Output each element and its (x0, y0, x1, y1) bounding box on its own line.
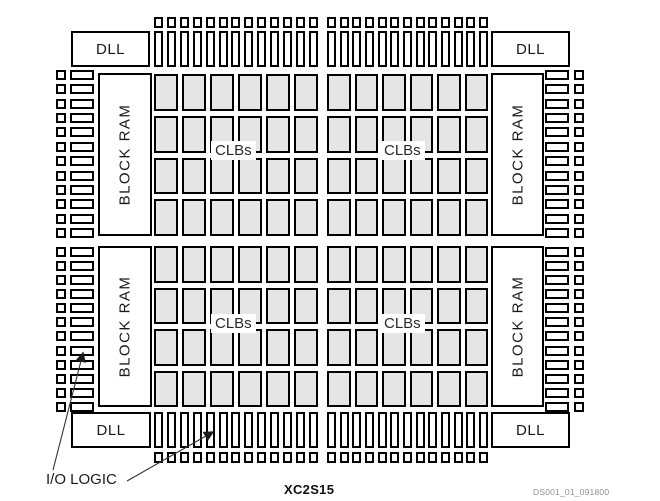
io-pad (70, 185, 94, 195)
io-pad (352, 17, 361, 28)
clb-cell (355, 371, 379, 408)
io-pad (296, 412, 305, 448)
io-pad (340, 452, 349, 463)
io-pad (70, 388, 94, 398)
clb-cell (382, 158, 406, 195)
io-pads-right-outer-bottom (574, 247, 584, 412)
io-pads-bottom-inner-right (327, 412, 488, 448)
io-pad (270, 31, 279, 67)
io-pad (390, 452, 399, 463)
clb-cell (266, 371, 290, 408)
io-pad (180, 412, 189, 448)
io-pad (545, 303, 569, 313)
io-pad (574, 199, 584, 209)
io-pad (70, 374, 94, 384)
io-pad (545, 99, 569, 109)
io-pad (466, 31, 475, 67)
io-pad (327, 412, 336, 448)
clb-cell (238, 246, 262, 283)
io-pad (574, 156, 584, 166)
io-pad (193, 412, 202, 448)
io-pad (441, 412, 450, 448)
io-pad (479, 17, 488, 28)
clbs-label-top-right: CLBs (380, 141, 425, 160)
io-pad (56, 214, 66, 224)
io-pad (231, 412, 240, 448)
io-pad (70, 360, 94, 370)
clb-cell (182, 329, 206, 366)
io-pad (441, 17, 450, 28)
io-pad (309, 452, 318, 463)
clb-cell (437, 158, 461, 195)
clb-cell (410, 329, 434, 366)
clb-cell (437, 199, 461, 236)
io-pad (545, 346, 569, 356)
io-pad (167, 17, 176, 28)
io-pad (206, 17, 215, 28)
clb-cell (182, 116, 206, 153)
io-pad (574, 317, 584, 327)
io-pad (56, 113, 66, 123)
io-pad (70, 127, 94, 137)
io-pad (56, 317, 66, 327)
io-pad (56, 228, 66, 238)
clb-cell (154, 329, 178, 366)
io-pad (574, 261, 584, 271)
io-pad (70, 113, 94, 123)
clb-cell (410, 246, 434, 283)
io-pad (545, 331, 569, 341)
block-ram-label: BLOCK RAM (509, 104, 526, 206)
clb-cell (327, 199, 351, 236)
io-pad (231, 31, 240, 67)
io-pad (403, 31, 412, 67)
io-pad (454, 17, 463, 28)
io-pad (403, 452, 412, 463)
io-pad (545, 360, 569, 370)
io-pad (56, 171, 66, 181)
clb-cell (266, 199, 290, 236)
io-pads-left-inner-bottom (70, 247, 94, 412)
io-pad (70, 275, 94, 285)
clb-cell (355, 158, 379, 195)
io-pad (574, 289, 584, 299)
fpga-architecture-diagram: DLL DLL DLL DLL BLOCK RAM BLOCK RAM BLOC… (0, 0, 660, 501)
clb-cell (294, 116, 318, 153)
clb-cell (437, 329, 461, 366)
clb-cell (327, 116, 351, 153)
clb-cell (437, 74, 461, 111)
io-pad (296, 17, 305, 28)
clb-cell (266, 288, 290, 325)
clb-cell (182, 158, 206, 195)
io-pad (167, 452, 176, 463)
io-pad (56, 388, 66, 398)
io-pad (296, 452, 305, 463)
io-pad (378, 452, 387, 463)
io-pads-left-inner-top (70, 70, 94, 238)
io-pad (70, 70, 94, 80)
io-pad (257, 17, 266, 28)
io-pad (574, 171, 584, 181)
io-pad (244, 412, 253, 448)
clb-cell (382, 371, 406, 408)
io-pad (378, 412, 387, 448)
io-pad (403, 17, 412, 28)
io-pad (454, 31, 463, 67)
io-pad (466, 412, 475, 448)
io-pad (70, 261, 94, 271)
io-pads-right-outer-top (574, 70, 584, 238)
io-pad (70, 317, 94, 327)
clb-cell (266, 74, 290, 111)
io-pad (545, 228, 569, 238)
io-pad (545, 70, 569, 80)
clbs-label-bottom-right: CLBs (380, 314, 425, 333)
dll-label: DLL (96, 41, 125, 58)
io-pad (154, 412, 163, 448)
io-pad (56, 261, 66, 271)
io-pad (70, 346, 94, 356)
io-pad (574, 360, 584, 370)
io-pad (70, 214, 94, 224)
io-pad (270, 17, 279, 28)
clb-cell (355, 288, 379, 325)
io-pad (574, 70, 584, 80)
io-pad (352, 452, 361, 463)
io-pad (70, 331, 94, 341)
clb-cell (210, 246, 234, 283)
clb-cell (182, 74, 206, 111)
clb-cell (210, 371, 234, 408)
block-ram-bottom-left: BLOCK RAM (98, 246, 152, 407)
io-pad (56, 331, 66, 341)
clb-cell (210, 199, 234, 236)
io-pads-bottom-outer-right (327, 452, 488, 463)
io-pad (574, 142, 584, 152)
io-pad (416, 31, 425, 67)
clb-cell (154, 246, 178, 283)
io-pad (70, 402, 94, 412)
clb-cell (182, 288, 206, 325)
io-pad (56, 360, 66, 370)
io-pads-left-outer-bottom (56, 247, 66, 412)
io-pad (390, 412, 399, 448)
clb-cell (327, 288, 351, 325)
clb-cell (154, 199, 178, 236)
io-pad (545, 171, 569, 181)
io-pad (193, 31, 202, 67)
io-pad (441, 452, 450, 463)
io-pad (479, 412, 488, 448)
clb-cell (238, 158, 262, 195)
io-pad (545, 247, 569, 257)
clb-cell (327, 158, 351, 195)
io-pad (545, 127, 569, 137)
io-pad (466, 17, 475, 28)
io-pad (352, 31, 361, 67)
clb-cell (465, 371, 489, 408)
clb-cell (266, 158, 290, 195)
io-pad (193, 452, 202, 463)
clb-cell (266, 329, 290, 366)
clb-cell (266, 246, 290, 283)
io-pad (180, 452, 189, 463)
io-pad (257, 412, 266, 448)
clb-cell (154, 158, 178, 195)
dll-block-top-left: DLL (71, 31, 150, 67)
io-pad (378, 17, 387, 28)
io-pad (378, 31, 387, 67)
io-pad (270, 452, 279, 463)
io-pad (270, 412, 279, 448)
io-pad (545, 84, 569, 94)
dll-label: DLL (96, 422, 125, 439)
io-pad (574, 185, 584, 195)
io-pads-top-inner-right (327, 31, 488, 67)
clb-cell (210, 74, 234, 111)
io-pad (441, 31, 450, 67)
io-pad (56, 70, 66, 80)
io-pad (56, 247, 66, 257)
clb-cell (294, 371, 318, 408)
io-pad (416, 17, 425, 28)
io-pad (365, 17, 374, 28)
dll-block-top-right: DLL (491, 31, 570, 67)
io-pad (56, 275, 66, 285)
clb-cell (355, 246, 379, 283)
clb-cell (154, 288, 178, 325)
io-pad (56, 303, 66, 313)
dll-block-bottom-right: DLL (491, 412, 570, 448)
clb-cell (182, 371, 206, 408)
clb-cell (437, 371, 461, 408)
block-ram-label: BLOCK RAM (117, 276, 134, 378)
io-pad (70, 142, 94, 152)
clb-cell (465, 158, 489, 195)
io-pad (257, 452, 266, 463)
io-pad (574, 388, 584, 398)
io-pad (428, 412, 437, 448)
clb-cell (294, 329, 318, 366)
io-pad (244, 31, 253, 67)
clb-cell (410, 199, 434, 236)
io-pad (56, 374, 66, 384)
io-pad (574, 346, 584, 356)
io-pad (56, 199, 66, 209)
io-pad (154, 17, 163, 28)
clb-cell (355, 329, 379, 366)
clb-cell (294, 158, 318, 195)
part-number-label: XC2S15 (284, 482, 334, 497)
io-pads-top-inner-left (154, 31, 318, 67)
io-pad (193, 17, 202, 28)
io-pad (70, 289, 94, 299)
clb-cell (410, 371, 434, 408)
io-pad (454, 412, 463, 448)
io-pad (56, 402, 66, 412)
io-pad (56, 185, 66, 195)
io-pad (244, 452, 253, 463)
io-pad (70, 303, 94, 313)
io-pads-left-outer-top (56, 70, 66, 238)
block-ram-top-right: BLOCK RAM (491, 73, 544, 236)
io-pad (428, 17, 437, 28)
io-pads-top-outer-right (327, 17, 488, 28)
io-pad (70, 247, 94, 257)
io-pad (574, 247, 584, 257)
io-pad (180, 31, 189, 67)
io-pad (244, 17, 253, 28)
io-pad (574, 113, 584, 123)
io-pad (545, 261, 569, 271)
io-pad (219, 412, 228, 448)
dll-label: DLL (516, 422, 545, 439)
clb-cell (327, 246, 351, 283)
io-pad (416, 412, 425, 448)
clb-cell (294, 74, 318, 111)
io-pad (70, 156, 94, 166)
clb-cell (355, 116, 379, 153)
clb-cell (465, 74, 489, 111)
io-pad (428, 31, 437, 67)
io-pad (365, 452, 374, 463)
io-pad (56, 156, 66, 166)
io-pad (309, 31, 318, 67)
clb-cell (238, 199, 262, 236)
io-pad (545, 199, 569, 209)
io-pad (545, 402, 569, 412)
io-pad (545, 142, 569, 152)
io-pad (327, 17, 336, 28)
clbs-label-bottom-left: CLBs (211, 314, 256, 333)
clb-cell (410, 158, 434, 195)
io-pad (283, 452, 292, 463)
io-pad (296, 31, 305, 67)
io-pad (466, 452, 475, 463)
io-pad (70, 199, 94, 209)
clb-cell (238, 371, 262, 408)
io-pad (154, 452, 163, 463)
io-pad (574, 331, 584, 341)
io-pads-top-outer-left (154, 17, 318, 28)
clb-cell (355, 74, 379, 111)
io-pad (574, 275, 584, 285)
clb-cell (410, 74, 434, 111)
clb-cell (327, 371, 351, 408)
io-pad (70, 99, 94, 109)
io-pad (365, 31, 374, 67)
clb-cell (154, 371, 178, 408)
io-pads-bottom-inner-left (154, 412, 318, 448)
io-pad (309, 17, 318, 28)
io-pad (454, 452, 463, 463)
io-pad (574, 127, 584, 137)
io-pad (56, 346, 66, 356)
clb-cell (294, 246, 318, 283)
clb-cell (238, 74, 262, 111)
clb-cell (437, 246, 461, 283)
clb-cell (465, 246, 489, 283)
io-pad (574, 214, 584, 224)
io-pad (574, 303, 584, 313)
io-pad (56, 127, 66, 137)
io-pad (231, 17, 240, 28)
clb-cell (355, 199, 379, 236)
io-pad (428, 452, 437, 463)
io-pad (574, 84, 584, 94)
clb-cell (327, 329, 351, 366)
io-pad (219, 452, 228, 463)
clb-cell (238, 329, 262, 366)
io-pad (574, 228, 584, 238)
io-pads-bottom-outer-left (154, 452, 318, 463)
doc-reference-label: DS001_01_091800 (533, 487, 609, 497)
io-pad (309, 412, 318, 448)
block-ram-top-left: BLOCK RAM (98, 73, 152, 236)
clb-cell (210, 158, 234, 195)
io-pad (545, 388, 569, 398)
clb-cell (382, 74, 406, 111)
io-pad (545, 214, 569, 224)
clb-cell (465, 199, 489, 236)
clb-cell (382, 199, 406, 236)
io-pad (352, 412, 361, 448)
clb-cell (294, 199, 318, 236)
io-pad (416, 452, 425, 463)
io-pad (574, 374, 584, 384)
clb-cell (465, 116, 489, 153)
clb-cell (210, 329, 234, 366)
io-pad (56, 84, 66, 94)
block-ram-label: BLOCK RAM (117, 104, 134, 206)
io-pad (340, 412, 349, 448)
io-pad (390, 31, 399, 67)
io-pad (219, 31, 228, 67)
clb-cell (382, 329, 406, 366)
io-pad (340, 17, 349, 28)
dll-block-bottom-left: DLL (71, 412, 151, 448)
io-pad (390, 17, 399, 28)
io-pad (283, 31, 292, 67)
io-pad (365, 412, 374, 448)
clb-cell (465, 288, 489, 325)
io-pad (283, 17, 292, 28)
clb-cell (437, 288, 461, 325)
clbs-label-top-left: CLBs (211, 141, 256, 160)
io-pad (283, 412, 292, 448)
io-pad (340, 31, 349, 67)
io-pad (545, 275, 569, 285)
io-pads-right-inner-bottom (545, 247, 569, 412)
io-pad (70, 228, 94, 238)
clb-cell (154, 74, 178, 111)
io-pad (70, 84, 94, 94)
io-pad (206, 31, 215, 67)
io-pad (180, 17, 189, 28)
io-pad (545, 185, 569, 195)
clb-cell (327, 74, 351, 111)
clb-cell (465, 329, 489, 366)
clb-cell (154, 116, 178, 153)
io-pad (479, 452, 488, 463)
io-pad (574, 402, 584, 412)
clb-cell (266, 116, 290, 153)
clb-cell (182, 246, 206, 283)
io-pad (206, 452, 215, 463)
io-pad (219, 17, 228, 28)
io-pad (327, 31, 336, 67)
